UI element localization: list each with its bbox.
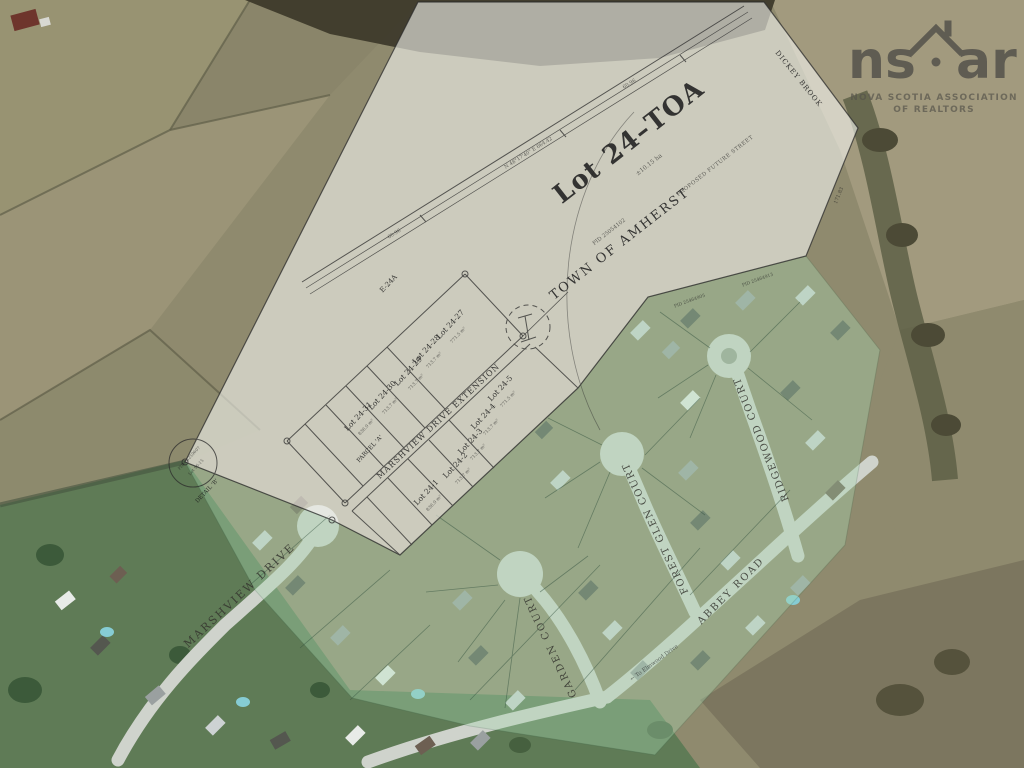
pool: [236, 697, 250, 707]
org-line1: NOVA SCOTIA ASSOCIATION: [850, 93, 1017, 103]
logo-ar: ar: [956, 31, 1017, 91]
aerial-survey-map: Lot 24–TOA ±10.15 ha TOWN OF AMHERST PID…: [0, 0, 1024, 768]
house-dot: [932, 58, 941, 67]
logo-ns: ns: [848, 31, 916, 91]
org-line2: OF REALTORS: [893, 105, 975, 115]
map-canvas: Lot 24–TOA ±10.15 ha TOWN OF AMHERST PID…: [0, 0, 1024, 768]
pool: [100, 627, 114, 637]
